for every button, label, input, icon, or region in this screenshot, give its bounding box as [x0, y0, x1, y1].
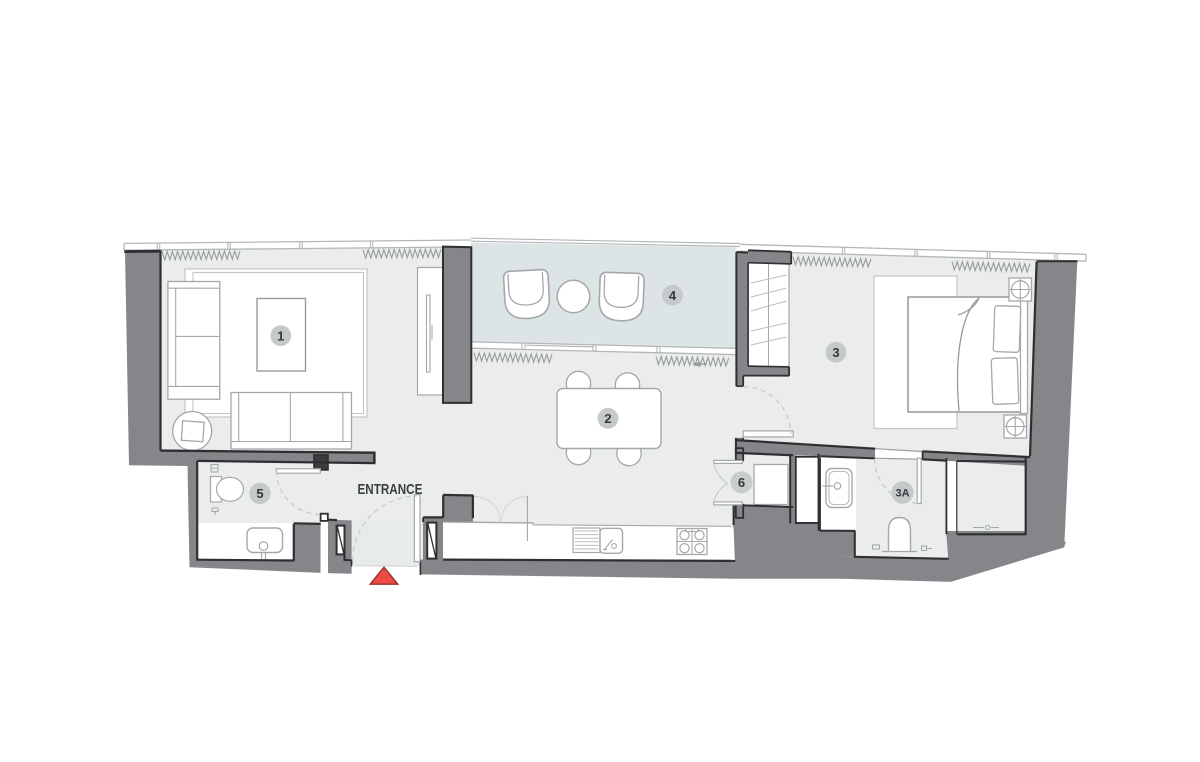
svg-text:1: 1	[277, 328, 284, 343]
svg-text:6: 6	[738, 475, 745, 490]
svg-text:3: 3	[832, 345, 839, 360]
svg-text:4: 4	[669, 288, 677, 303]
svg-text:3A: 3A	[895, 488, 909, 500]
svg-text:ENTRANCE: ENTRANCE	[358, 481, 423, 498]
svg-text:5: 5	[256, 486, 263, 501]
svg-text:2: 2	[604, 411, 611, 426]
